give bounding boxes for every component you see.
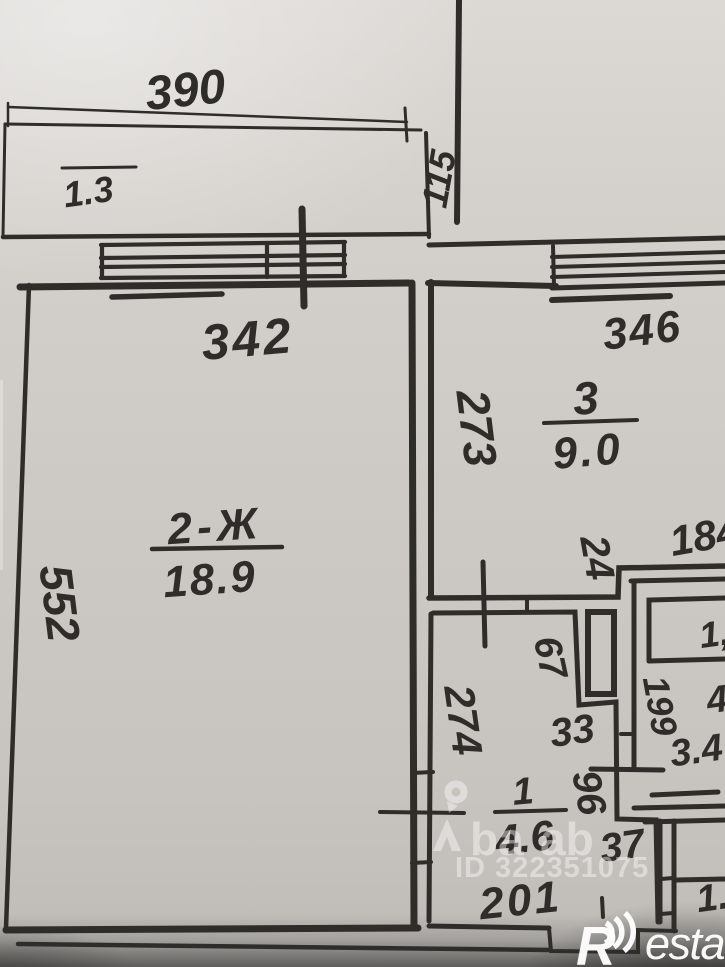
svg-text:2-Ж: 2-Ж [165,499,264,555]
svg-text:96: 96 [563,767,614,819]
svg-text:1,: 1, [697,611,725,656]
svg-text:3.4: 3.4 [667,727,725,776]
svg-text:552: 552 [29,562,90,645]
svg-text:24: 24 [571,531,622,583]
svg-text:274: 274 [435,681,491,758]
svg-text:3: 3 [571,371,601,425]
svg-text:1.3: 1.3 [61,168,116,216]
svg-text:18.9: 18.9 [162,552,259,607]
svg-text:estate: estate [645,918,725,967]
svg-text:390: 390 [143,60,228,121]
svg-text:346: 346 [600,301,685,359]
svg-text:273: 273 [446,386,507,470]
svg-text:9.0: 9.0 [551,424,625,479]
svg-text:33: 33 [547,706,597,756]
svg-text:1.: 1. [694,875,725,921]
svg-text:1: 1 [511,770,536,814]
svg-text:342: 342 [199,307,296,371]
svg-text:ID 322351075: ID 322351075 [455,852,649,884]
